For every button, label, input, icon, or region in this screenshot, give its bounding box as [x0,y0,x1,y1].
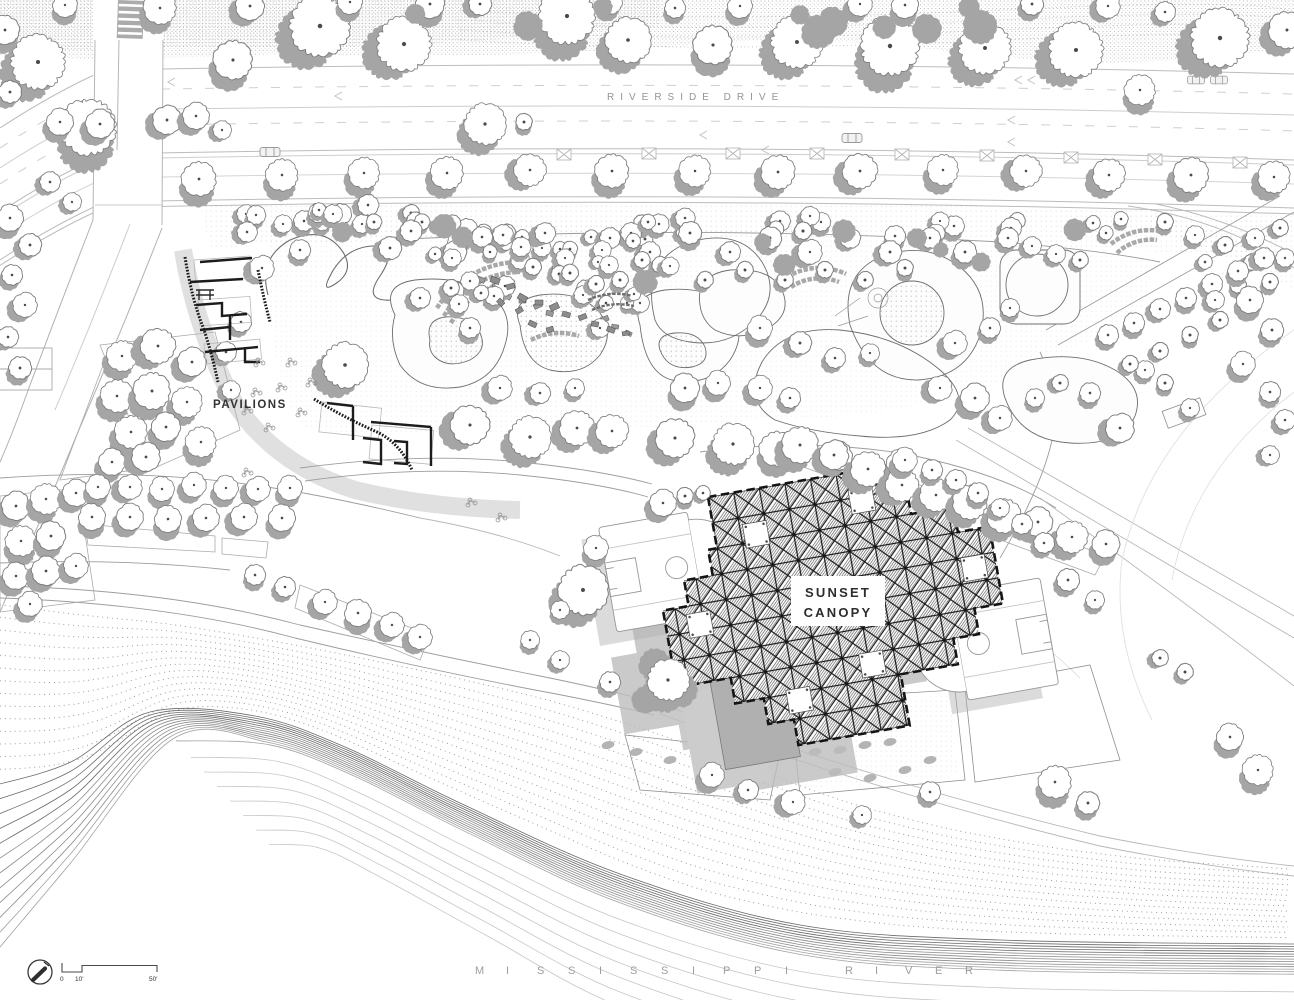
svg-text:I: I [785,965,788,977]
svg-text:I: I [692,965,695,977]
svg-text:SUNSET: SUNSET [805,585,871,600]
svg-text:P: P [723,965,730,977]
svg-text:I: I [599,965,602,977]
svg-text:PAVILIONS: PAVILIONS [213,399,287,411]
svg-text:0: 0 [60,976,64,983]
svg-text:S: S [568,965,575,977]
svg-text:S: S [537,965,544,977]
svg-text:S: S [630,965,637,977]
svg-text:M: M [475,965,484,977]
svg-text:RIVERSIDE DRIVE: RIVERSIDE DRIVE [607,92,784,103]
svg-text:I: I [875,965,878,977]
svg-text:CANOPY: CANOPY [804,605,873,620]
svg-text:R: R [965,965,973,977]
svg-text:R: R [845,965,853,977]
svg-text:S: S [661,965,668,977]
svg-text:E: E [935,965,942,977]
svg-text:P: P [754,965,761,977]
svg-text:I: I [506,965,509,977]
svg-text:10′: 10′ [75,976,84,983]
svg-text:50′: 50′ [149,976,158,983]
svg-text:V: V [905,965,913,977]
